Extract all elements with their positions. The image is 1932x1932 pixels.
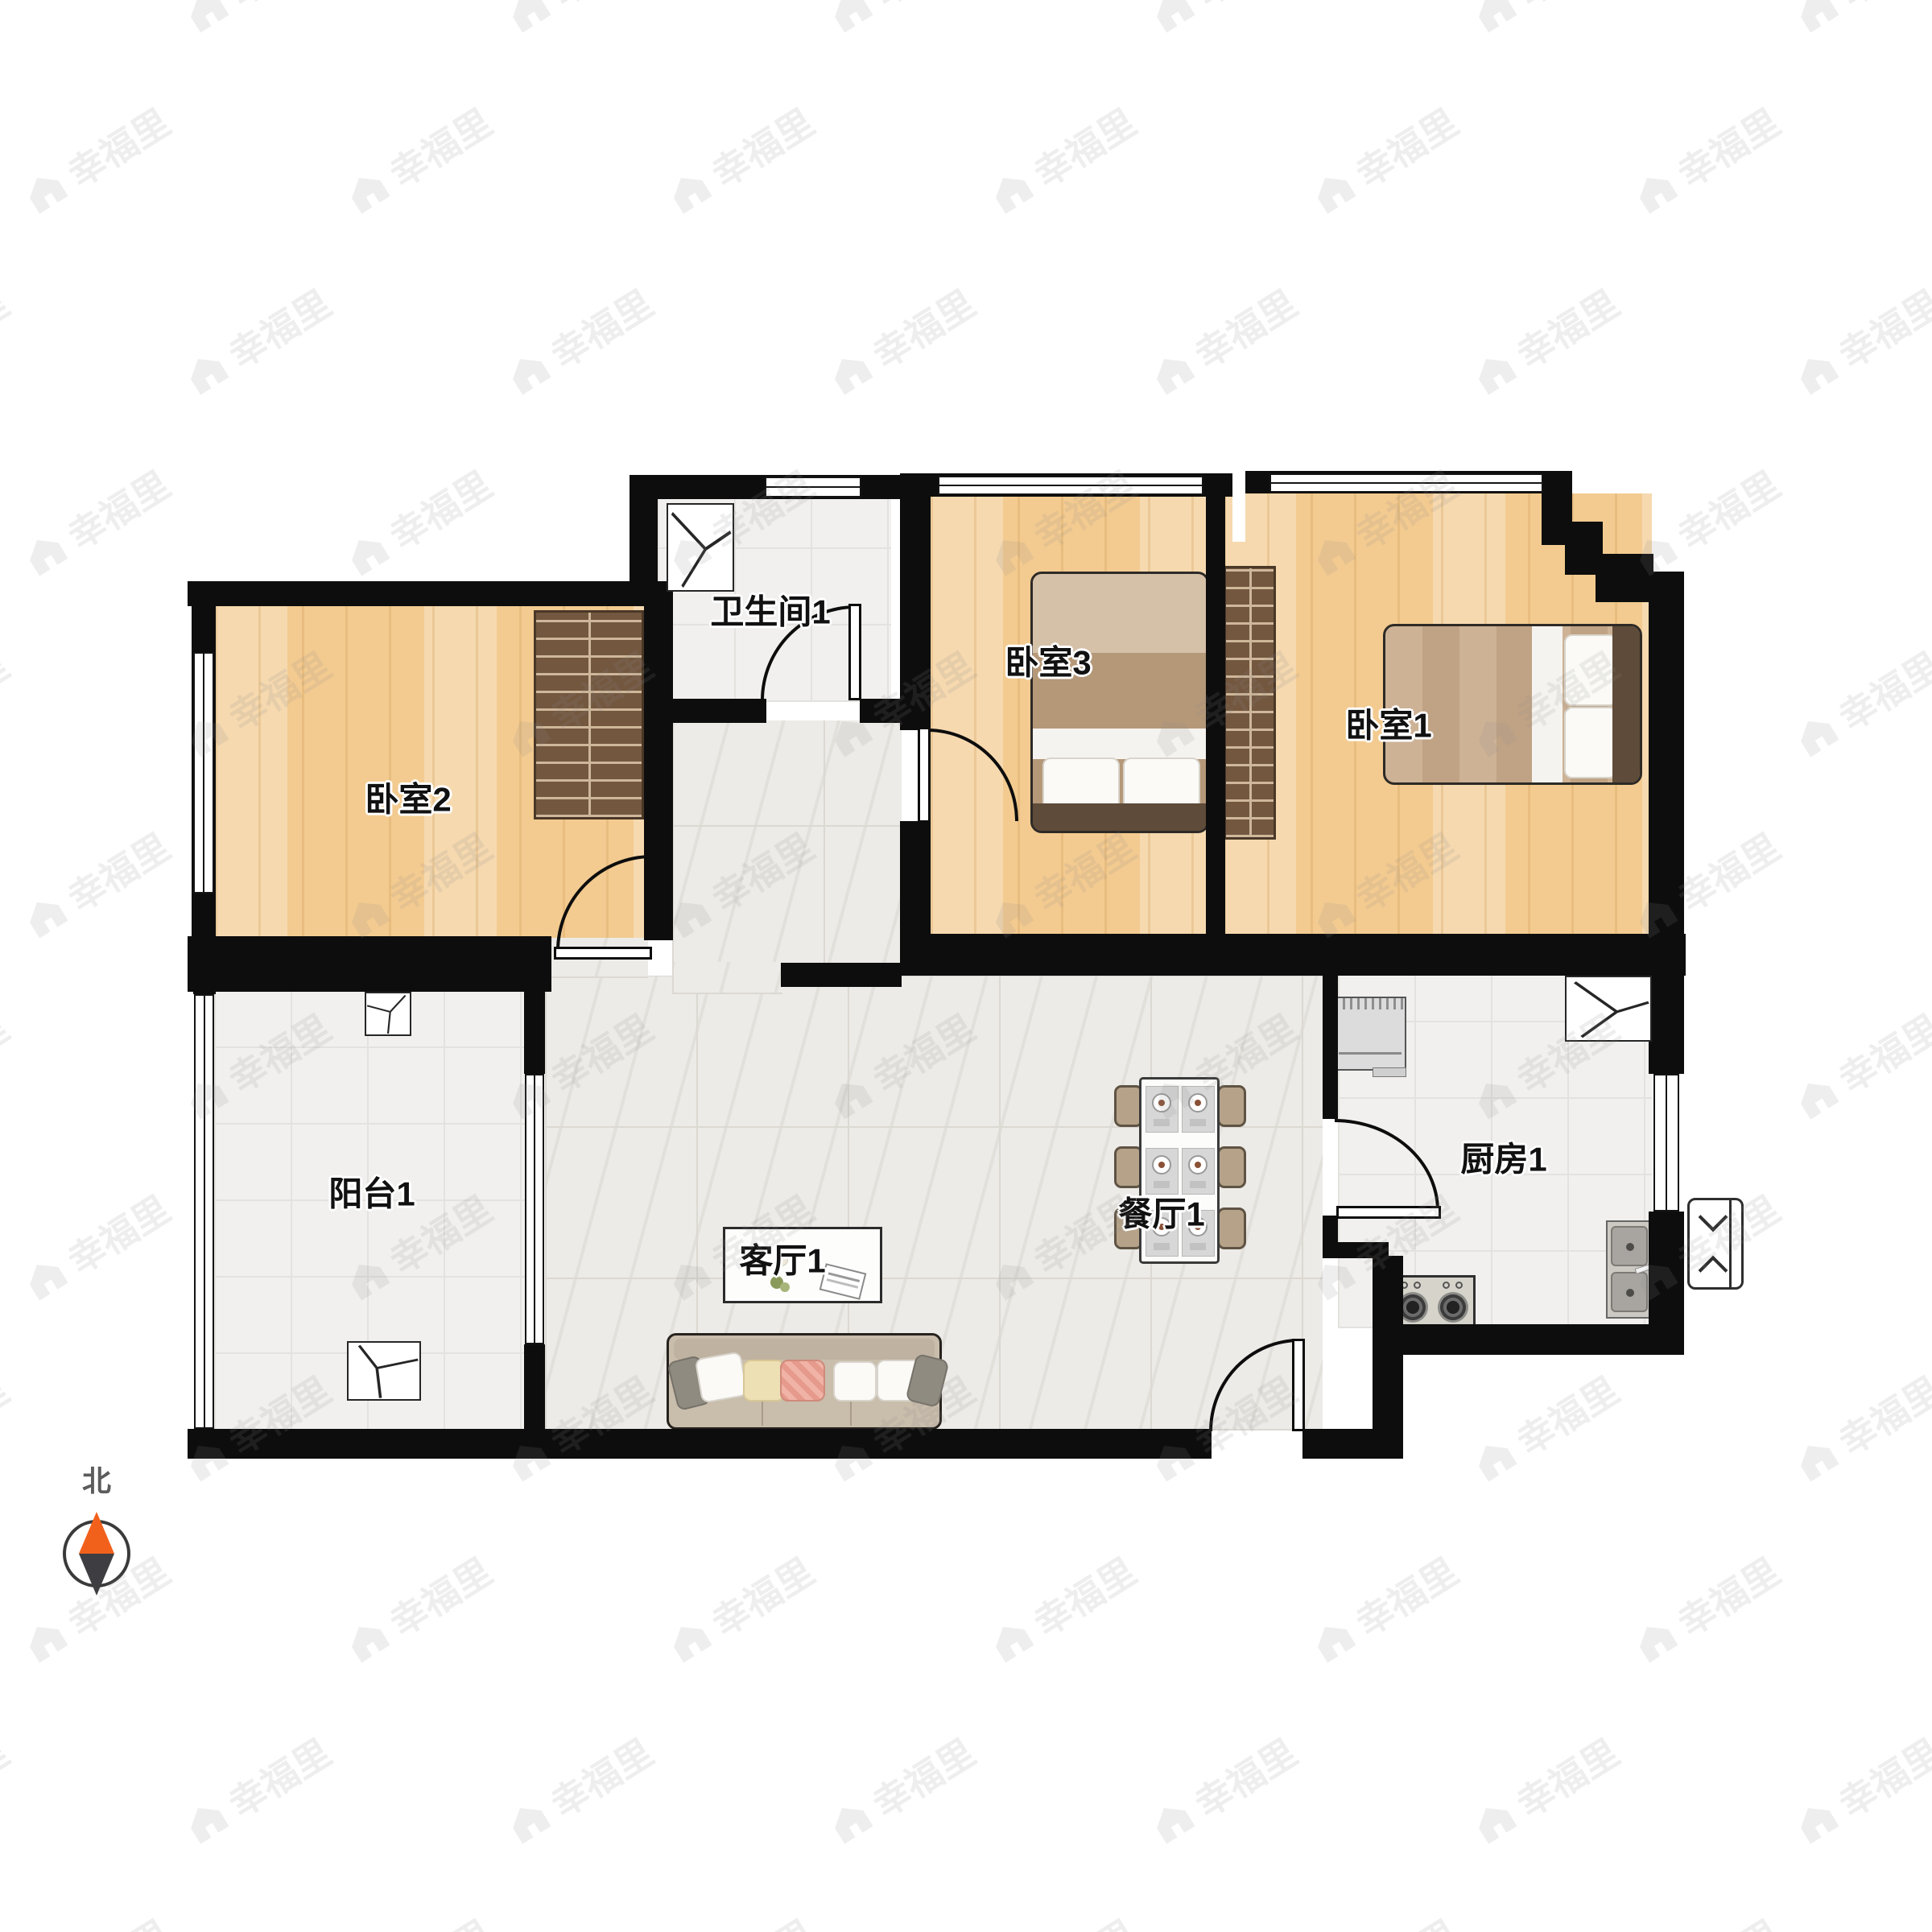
watermark-house-icon bbox=[823, 345, 878, 400]
watermark-text: 幸福里 bbox=[0, 1000, 18, 1104]
watermark-house-icon bbox=[1789, 345, 1844, 400]
bed-sheet-fold bbox=[1033, 729, 1207, 759]
wall bbox=[900, 934, 1686, 976]
wall bbox=[1206, 491, 1225, 935]
watermark-text: 幸福里 bbox=[700, 1905, 823, 1932]
compass: 北 bbox=[40, 1445, 153, 1606]
sofa-icon bbox=[667, 1333, 942, 1430]
wall bbox=[193, 976, 216, 994]
kitchen-sink-icon bbox=[1606, 1220, 1654, 1319]
watermark-item: 幸福里 bbox=[14, 94, 180, 225]
window-bedroom2 bbox=[193, 652, 214, 894]
watermark-text: 幸福里 bbox=[700, 94, 823, 198]
watermark-item: 幸福里 bbox=[1302, 1905, 1468, 1932]
watermark-text: 幸福里 bbox=[539, 0, 662, 17]
wall bbox=[672, 699, 766, 723]
watermark-house-icon bbox=[1306, 163, 1361, 219]
watermark-text: 幸福里 bbox=[56, 456, 179, 560]
watermark-item: 幸福里 bbox=[0, 275, 18, 406]
watermark-item: 幸福里 bbox=[1624, 1543, 1790, 1674]
room-label-living1: 客厅1 bbox=[739, 1234, 825, 1283]
watermark-text: 幸福里 bbox=[217, 0, 340, 17]
watermark-item: 幸福里 bbox=[336, 1905, 502, 1932]
sofa-pillow bbox=[780, 1360, 825, 1402]
watermark-item: 幸福里 bbox=[0, 638, 18, 768]
watermark-house-icon bbox=[501, 1794, 556, 1849]
wall bbox=[1649, 1212, 1684, 1355]
watermark-house-icon bbox=[1628, 163, 1683, 219]
watermark-item: 幸福里 bbox=[175, 275, 341, 406]
watermark-text: 幸福里 bbox=[0, 0, 18, 17]
wardrobe-icon bbox=[534, 610, 644, 819]
room-label-bedroom2: 卧室2 bbox=[365, 773, 451, 822]
watermark-house-icon bbox=[662, 1612, 717, 1668]
watermark-house-icon bbox=[823, 0, 878, 38]
watermark-text: 幸福里 bbox=[700, 1543, 823, 1647]
watermark-text: 幸福里 bbox=[1827, 1724, 1932, 1828]
door-leaf-bedroom2 bbox=[554, 947, 652, 960]
watermark-house-icon bbox=[179, 0, 234, 38]
compass-needle-north bbox=[79, 1512, 114, 1554]
watermark-text: 幸福里 bbox=[1666, 456, 1789, 560]
corner-fixture-icon bbox=[1565, 976, 1652, 1042]
placemat bbox=[1182, 1086, 1215, 1133]
wall bbox=[1302, 1429, 1403, 1459]
table-book bbox=[819, 1263, 867, 1300]
air-conditioner-outdoor-unit-icon bbox=[1687, 1198, 1744, 1290]
watermark-item: 幸福里 bbox=[175, 0, 341, 43]
watermark-item: 幸福里 bbox=[1785, 0, 1932, 43]
watermark-text: 幸福里 bbox=[378, 1905, 501, 1932]
sofa-pillow bbox=[695, 1351, 749, 1403]
watermark-text: 幸福里 bbox=[217, 1724, 340, 1828]
window-balcony-living-divider bbox=[525, 1074, 544, 1344]
watermark-text: 幸福里 bbox=[56, 819, 179, 923]
compass-needle-south bbox=[79, 1554, 114, 1596]
watermark-text: 幸福里 bbox=[1022, 94, 1145, 198]
double-bed-icon bbox=[1030, 572, 1209, 833]
watermark-item: 幸福里 bbox=[1141, 0, 1307, 43]
watermark-text: 幸福里 bbox=[1827, 1362, 1932, 1466]
watermark-house-icon bbox=[1467, 0, 1522, 38]
watermark-item: 幸福里 bbox=[14, 456, 180, 587]
wall bbox=[781, 963, 902, 987]
watermark-house-icon bbox=[1145, 1794, 1200, 1849]
watermark-text: 幸福里 bbox=[378, 1543, 501, 1647]
pillow bbox=[1564, 634, 1617, 706]
watermark-text: 幸福里 bbox=[1666, 1905, 1789, 1932]
watermark-item: 幸福里 bbox=[1624, 1905, 1790, 1932]
watermark-house-icon bbox=[1467, 345, 1522, 400]
hallway-floor bbox=[672, 962, 782, 994]
watermark-text: 幸福里 bbox=[1827, 0, 1932, 17]
watermark-text: 幸福里 bbox=[378, 94, 501, 198]
placemat bbox=[1146, 1086, 1179, 1133]
room-label-bedroom1: 卧室1 bbox=[1345, 699, 1431, 748]
dining-chair-icon bbox=[1217, 1207, 1246, 1249]
watermark-text: 幸福里 bbox=[1344, 94, 1467, 198]
hallway-floor bbox=[672, 720, 902, 978]
watermark-item: 幸福里 bbox=[497, 275, 663, 406]
watermark-item: 幸福里 bbox=[980, 1543, 1146, 1674]
room-label-dining1: 餐厅1 bbox=[1118, 1187, 1204, 1236]
watermark-house-icon bbox=[1789, 1794, 1844, 1849]
watermark-text: 幸福里 bbox=[539, 275, 662, 379]
watermark-text: 幸福里 bbox=[1183, 275, 1306, 379]
watermark-item: 幸福里 bbox=[497, 1724, 663, 1855]
watermark-house-icon bbox=[18, 526, 73, 581]
wall bbox=[188, 581, 658, 606]
watermark-text: 幸福里 bbox=[1183, 1724, 1306, 1828]
watermark-text: 幸福里 bbox=[1827, 1000, 1932, 1104]
watermark-item: 幸福里 bbox=[336, 94, 502, 225]
table-plant bbox=[780, 1282, 790, 1292]
floor-plan-canvas: 卧室2 卫生间1 卧室3 卧室1 阳台1 客厅1 餐厅1 厨房1 北 幸福里幸福… bbox=[0, 0, 1932, 1932]
door-leaf-bathroom bbox=[848, 604, 861, 700]
watermark-item: 幸福里 bbox=[1302, 1543, 1468, 1674]
watermark-item: 幸福里 bbox=[980, 94, 1146, 225]
watermark-text: 幸福里 bbox=[0, 1362, 18, 1466]
watermark-text: 幸福里 bbox=[1022, 1905, 1145, 1932]
watermark-house-icon bbox=[179, 1794, 234, 1849]
watermark-house-icon bbox=[1789, 0, 1844, 38]
wall bbox=[1596, 554, 1653, 602]
window-bedroom3 bbox=[938, 476, 1203, 495]
watermark-house-icon bbox=[340, 163, 395, 219]
watermark-text: 幸福里 bbox=[861, 275, 984, 379]
watermark-house-icon bbox=[501, 345, 556, 400]
watermark-text: 幸福里 bbox=[1827, 275, 1932, 379]
window-kitchen bbox=[1653, 1074, 1679, 1212]
watermark-item: 幸福里 bbox=[14, 1181, 180, 1311]
watermark-house-icon bbox=[1306, 1612, 1361, 1668]
watermark-house-icon bbox=[1789, 1431, 1844, 1487]
watermark-text: 幸福里 bbox=[861, 0, 984, 17]
burner bbox=[1438, 1292, 1468, 1323]
watermark-item: 幸福里 bbox=[1785, 275, 1932, 406]
window-bedroom1 bbox=[1269, 473, 1543, 493]
watermark-item: 幸福里 bbox=[658, 94, 824, 225]
watermark-house-icon bbox=[1467, 1431, 1522, 1487]
watermark-house-icon bbox=[1789, 707, 1844, 762]
wall bbox=[188, 1429, 1212, 1459]
watermark-item: 幸福里 bbox=[980, 1905, 1146, 1932]
corner-fixture-icon bbox=[347, 1341, 421, 1401]
watermark-item: 幸福里 bbox=[0, 1000, 18, 1130]
watermark-text: 幸福里 bbox=[56, 1905, 179, 1932]
wall bbox=[1373, 1324, 1664, 1355]
watermark-item: 幸福里 bbox=[0, 1724, 18, 1855]
pillow bbox=[1564, 707, 1617, 778]
watermark-text: 幸福里 bbox=[1505, 1362, 1628, 1466]
watermark-house-icon bbox=[1145, 0, 1200, 38]
watermark-item: 幸福里 bbox=[819, 0, 985, 43]
door-leaf-bedroom3 bbox=[918, 727, 931, 823]
wall bbox=[900, 821, 931, 938]
refrigerator-icon bbox=[1334, 997, 1406, 1071]
room-label-kitchen1: 厨房1 bbox=[1460, 1133, 1546, 1182]
watermark-item: 幸福里 bbox=[1463, 0, 1629, 43]
watermark-item: 幸福里 bbox=[336, 1543, 502, 1674]
wall bbox=[524, 992, 545, 1074]
dining-chair-icon bbox=[1217, 1146, 1246, 1188]
room-label-balcony1: 阳台1 bbox=[328, 1167, 415, 1216]
watermark-item: 幸福里 bbox=[1463, 1724, 1629, 1855]
watermark-item: 幸福里 bbox=[1463, 275, 1629, 406]
watermark-text: 幸福里 bbox=[217, 275, 340, 379]
watermark-text: 幸福里 bbox=[0, 1724, 18, 1828]
door-leaf-entrance bbox=[1292, 1339, 1305, 1431]
bed-headboard bbox=[1612, 626, 1640, 782]
watermark-text: 幸福里 bbox=[1666, 1543, 1789, 1647]
watermark-house-icon bbox=[662, 163, 717, 219]
watermark-item: 幸福里 bbox=[14, 1905, 180, 1932]
watermark-text: 幸福里 bbox=[378, 456, 501, 560]
watermark-text: 幸福里 bbox=[1505, 0, 1628, 17]
watermark-item: 幸福里 bbox=[1141, 275, 1307, 406]
room-label-bathroom1: 卫生间1 bbox=[710, 585, 830, 634]
watermark-item: 幸福里 bbox=[1624, 94, 1790, 225]
watermark-text: 幸福里 bbox=[56, 94, 179, 198]
watermark-house-icon bbox=[18, 888, 73, 943]
watermark-house-icon bbox=[340, 1612, 395, 1668]
watermark-text: 幸福里 bbox=[861, 1724, 984, 1828]
sofa-pillow bbox=[833, 1361, 877, 1402]
watermark-house-icon bbox=[18, 1612, 73, 1668]
watermark-house-icon bbox=[18, 163, 73, 219]
watermark-text: 幸福里 bbox=[1666, 94, 1789, 198]
watermark-item: 幸福里 bbox=[175, 1724, 341, 1855]
room-label-bedroom3: 卧室3 bbox=[1005, 636, 1091, 685]
watermark-item: 幸福里 bbox=[819, 1724, 985, 1855]
watermark-text: 幸福里 bbox=[1183, 0, 1306, 17]
watermark-text: 幸福里 bbox=[1344, 1905, 1467, 1932]
watermark-item: 幸福里 bbox=[1302, 94, 1468, 225]
watermark-house-icon bbox=[1145, 345, 1200, 400]
watermark-item: 幸福里 bbox=[1785, 1362, 1932, 1492]
window-balcony-glass-wall bbox=[194, 994, 214, 1429]
wardrobe-icon bbox=[1224, 566, 1276, 840]
watermark-text: 幸福里 bbox=[1827, 638, 1932, 741]
flue-slot bbox=[1232, 471, 1245, 542]
watermark-house-icon bbox=[18, 1250, 73, 1306]
watermark-item: 幸福里 bbox=[497, 0, 663, 43]
bed-headboard bbox=[1033, 803, 1207, 831]
watermark-item: 幸福里 bbox=[1463, 1362, 1629, 1492]
watermark-item: 幸福里 bbox=[819, 275, 985, 406]
corner-fixture-icon bbox=[365, 992, 411, 1036]
watermark-house-icon bbox=[1467, 1794, 1522, 1849]
shower-corner-icon bbox=[667, 503, 734, 592]
watermark-item: 幸福里 bbox=[658, 1905, 824, 1932]
wall bbox=[1649, 976, 1684, 1074]
watermark-text: 幸福里 bbox=[1505, 1724, 1628, 1828]
watermark-house-icon bbox=[984, 1612, 1039, 1668]
watermark-item: 幸福里 bbox=[1141, 1724, 1307, 1855]
wall bbox=[188, 936, 551, 992]
watermark-item: 幸福里 bbox=[14, 819, 180, 949]
watermark-text: 幸福里 bbox=[539, 1724, 662, 1828]
watermark-house-icon bbox=[501, 0, 556, 38]
watermark-text: 幸福里 bbox=[1344, 1543, 1467, 1647]
watermark-text: 幸福里 bbox=[1666, 819, 1789, 923]
watermark-item: 幸福里 bbox=[336, 456, 502, 587]
watermark-item: 幸福里 bbox=[1785, 638, 1932, 768]
sofa-pillow bbox=[743, 1360, 785, 1402]
door-leaf-kitchen bbox=[1336, 1206, 1441, 1219]
watermark-house-icon bbox=[823, 1794, 878, 1849]
dining-chair-icon bbox=[1217, 1085, 1246, 1127]
watermark-house-icon bbox=[1628, 1612, 1683, 1668]
bed-sheet-fold bbox=[1532, 626, 1563, 782]
watermark-item: 幸福里 bbox=[1785, 1000, 1932, 1130]
watermark-house-icon bbox=[340, 526, 395, 581]
watermark-house-icon bbox=[179, 345, 234, 400]
watermark-house-icon bbox=[984, 163, 1039, 219]
wall bbox=[524, 1344, 545, 1430]
wall bbox=[1649, 572, 1684, 976]
window-bathroom bbox=[765, 477, 861, 497]
compass-north-label: 北 bbox=[82, 1458, 111, 1500]
watermark-house-icon bbox=[1789, 1069, 1844, 1125]
wall bbox=[1323, 976, 1338, 1119]
watermark-text: 幸福里 bbox=[1022, 1543, 1145, 1647]
watermark-text: 幸福里 bbox=[1505, 275, 1628, 379]
watermark-item: 幸福里 bbox=[0, 0, 18, 43]
watermark-text: 幸福里 bbox=[0, 638, 18, 741]
watermark-item: 幸福里 bbox=[658, 1543, 824, 1674]
wall bbox=[900, 497, 931, 730]
wall bbox=[860, 699, 903, 723]
watermark-text: 幸福里 bbox=[0, 275, 18, 379]
watermark-text: 幸福里 bbox=[56, 1181, 179, 1285]
watermark-item: 幸福里 bbox=[0, 1362, 18, 1492]
watermark-item: 幸福里 bbox=[1785, 1724, 1932, 1855]
